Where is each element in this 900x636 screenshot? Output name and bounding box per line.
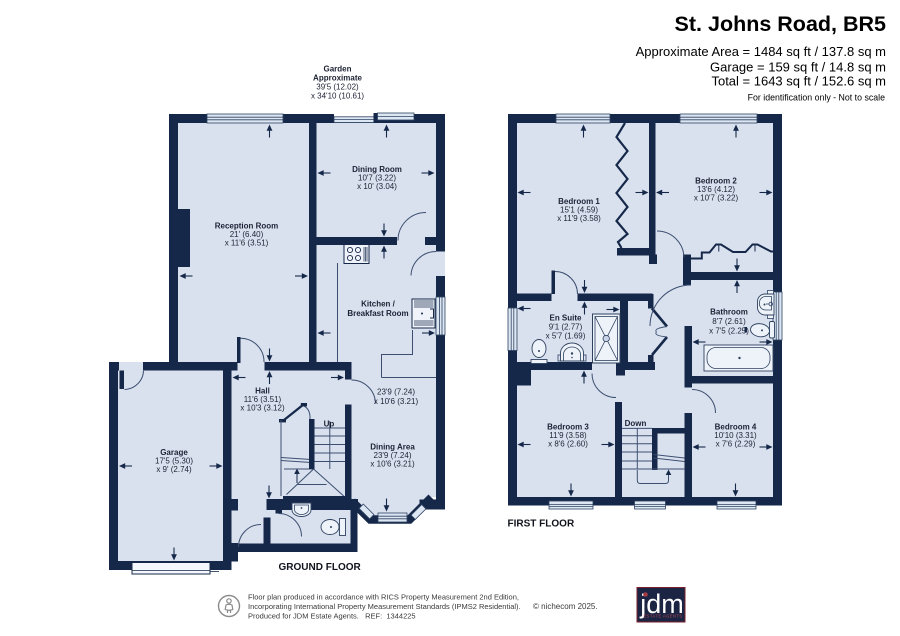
svg-text:Total = 1643 sq ft / 152.6 sq: Total = 1643 sq ft / 152.6 sq m [711,74,886,89]
svg-text:Approximate Area = 1484 sq ft: Approximate Area = 1484 sq ft / 137.8 sq… [636,44,886,59]
svg-text:x 10'6 (3.21): x 10'6 (3.21) [374,397,419,406]
svg-text:x 10' (3.04): x 10' (3.04) [357,182,397,191]
svg-text:Garden: Garden [323,65,351,74]
svg-text:x 9' (2.74): x 9' (2.74) [156,465,192,474]
svg-text:ESTATE AGENTS: ESTATE AGENTS [643,614,682,619]
svg-text:9'1 (2.77): 9'1 (2.77) [549,323,583,332]
svg-text:Produced for JDM Estate Agents: Produced for JDM Estate Agents. REF: 134… [248,612,416,621]
svg-text:Incorporating International Pr: Incorporating International Property Mea… [248,602,521,611]
svg-text:x 7'5 (2.25): x 7'5 (2.25) [709,327,749,336]
svg-text:x 10'7 (3.22): x 10'7 (3.22) [694,194,739,203]
svg-text:Bathroom: Bathroom [710,308,748,317]
svg-text:Down: Down [625,419,647,428]
svg-text:x 11'6 (3.51): x 11'6 (3.51) [225,239,269,248]
svg-text:x 7'6 (2.29): x 7'6 (2.29) [716,440,756,449]
svg-text:x 10'3 (3.12): x 10'3 (3.12) [240,404,285,413]
svg-text:Floor plan produced in accorda: Floor plan produced in accordance with R… [248,593,519,602]
svg-text:GROUND FLOOR: GROUND FLOOR [279,562,362,573]
svg-text:© nichecom 2025.: © nichecom 2025. [533,602,598,611]
svg-text:x 10'6 (3.21): x 10'6 (3.21) [370,460,415,469]
svg-text:x 34'10 (10.61): x 34'10 (10.61) [311,92,364,101]
svg-text:x 11'9 (3.58): x 11'9 (3.58) [557,214,601,223]
svg-text:FIRST FLOOR: FIRST FLOOR [508,519,575,530]
svg-text:St. Johns Road, BR5: St. Johns Road, BR5 [675,12,886,36]
svg-text:23'9 (7.24): 23'9 (7.24) [377,388,415,397]
svg-text:Up: Up [324,420,335,429]
svg-text:Approximate: Approximate [313,74,362,83]
svg-text:Kitchen /: Kitchen / [361,300,396,309]
svg-text:En Suite: En Suite [549,314,582,323]
svg-text:Breakfast Room: Breakfast Room [347,309,408,318]
svg-text:8'7 (2.61): 8'7 (2.61) [712,317,746,326]
svg-text:For identification only - Not: For identification only - Not to scale [748,93,885,103]
svg-text:x 8'6 (2.60): x 8'6 (2.60) [548,440,588,449]
svg-text:Garage = 159 sq ft / 14.8 sq m: Garage = 159 sq ft / 14.8 sq m [710,60,886,75]
svg-text:39'5 (12.02): 39'5 (12.02) [316,83,359,92]
svg-text:x 5'7 (1.69): x 5'7 (1.69) [546,332,586,341]
